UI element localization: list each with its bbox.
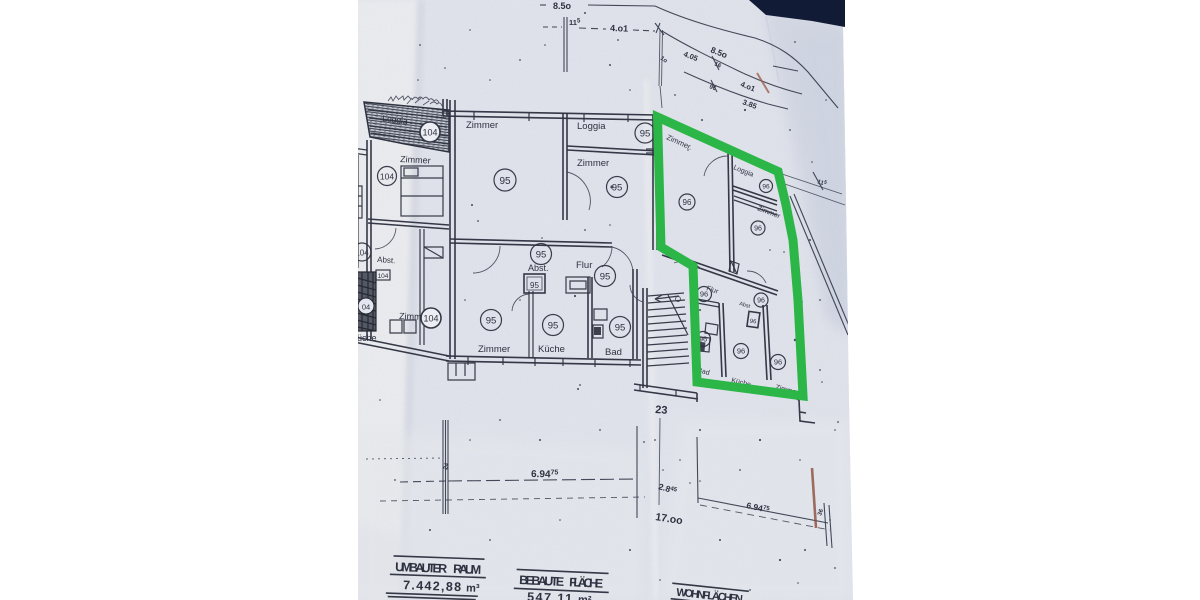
svg-text:104: 104 bbox=[380, 172, 394, 182]
svg-text:96: 96 bbox=[757, 298, 765, 305]
svg-text:4.o1: 4.o1 bbox=[610, 23, 628, 34]
svg-text:104: 104 bbox=[422, 128, 437, 138]
svg-text:95: 95 bbox=[615, 323, 626, 334]
svg-text:7.442,88: 7.442,88 bbox=[403, 578, 462, 594]
svg-text:23: 23 bbox=[655, 404, 668, 417]
svg-text:96: 96 bbox=[774, 358, 782, 367]
svg-text:Flur: Flur bbox=[576, 260, 592, 271]
svg-text:Zimmer: Zimmer bbox=[400, 154, 431, 166]
svg-text:96: 96 bbox=[754, 226, 762, 233]
svg-text:104: 104 bbox=[423, 314, 438, 324]
svg-text:Zimmer: Zimmer bbox=[577, 158, 609, 169]
svg-text:Küche: Küche bbox=[538, 344, 565, 355]
svg-text:547,11: 547,11 bbox=[527, 590, 573, 600]
svg-text:Abst.: Abst. bbox=[377, 255, 396, 265]
svg-text:Zimmer: Zimmer bbox=[478, 344, 510, 355]
svg-text:Bad: Bad bbox=[605, 347, 622, 358]
svg-text:96: 96 bbox=[700, 290, 708, 299]
svg-text:m³: m³ bbox=[466, 582, 480, 594]
svg-text:m²: m² bbox=[578, 594, 592, 600]
svg-text:95: 95 bbox=[612, 183, 623, 194]
svg-text:95: 95 bbox=[486, 316, 497, 327]
svg-text:104: 104 bbox=[378, 273, 389, 280]
svg-text:04: 04 bbox=[362, 303, 370, 312]
svg-text:Abst.: Abst. bbox=[528, 263, 549, 273]
svg-text:95: 95 bbox=[600, 272, 611, 283]
svg-text:95: 95 bbox=[530, 281, 539, 290]
svg-text:8.5o: 8.5o bbox=[553, 1, 572, 11]
svg-text:96: 96 bbox=[737, 347, 745, 356]
svg-text:BEBAUTE: BEBAUTE bbox=[519, 573, 565, 589]
svg-text:Zimmer: Zimmer bbox=[466, 120, 498, 131]
svg-text:96: 96 bbox=[683, 198, 692, 207]
svg-text:95: 95 bbox=[640, 129, 651, 140]
svg-text:Loggia: Loggia bbox=[577, 121, 606, 132]
svg-text:UMBAUTER: UMBAUTER bbox=[395, 560, 447, 576]
svg-text:95: 95 bbox=[548, 321, 559, 332]
svg-text:RAUM: RAUM bbox=[453, 562, 481, 577]
svg-text:95: 95 bbox=[499, 176, 511, 187]
svg-text:95: 95 bbox=[536, 250, 547, 261]
svg-text:96: 96 bbox=[762, 184, 770, 191]
svg-text:FLÄCHE: FLÄCHE bbox=[569, 574, 604, 590]
